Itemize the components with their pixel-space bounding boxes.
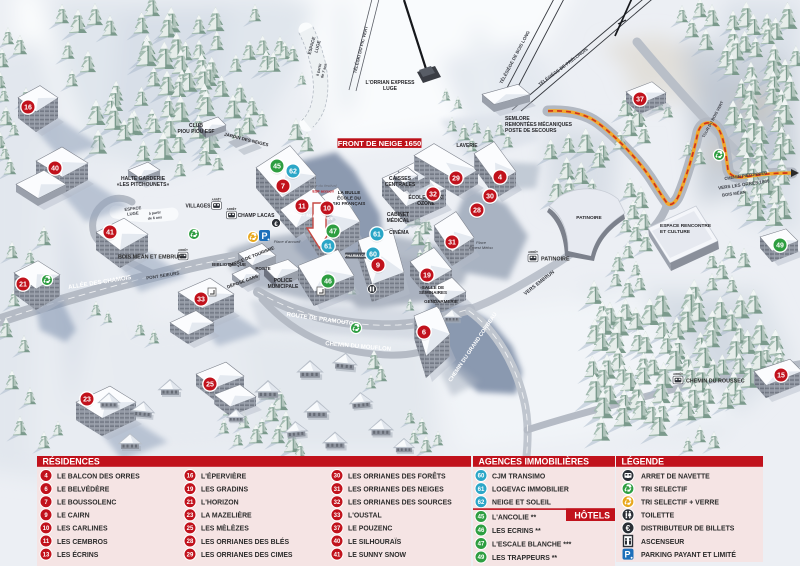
svg-text:47: 47 (478, 542, 485, 548)
svg-text:SÉMINAIRES: SÉMINAIRES (419, 288, 447, 295)
svg-text:L'HORIZON: L'HORIZON (201, 500, 239, 507)
svg-text:TRI SELECTIF + VERRE: TRI SELECTIF + VERRE (641, 500, 719, 507)
svg-text:LES TRAPPEURS **: LES TRAPPEURS ** (492, 555, 557, 562)
svg-text:MÉDICAL: MÉDICAL (387, 216, 410, 224)
svg-text:11: 11 (298, 204, 306, 211)
svg-text:LUGE: LUGE (383, 86, 398, 92)
svg-text:CHEMIN DU ROUSSEC: CHEMIN DU ROUSSEC (686, 379, 745, 385)
svg-text:PIOU PIOU ESF: PIOU PIOU ESF (178, 129, 215, 135)
svg-text:L'ANCOLIE **: L'ANCOLIE ** (492, 514, 536, 521)
svg-text:LAVERIE: LAVERIE (456, 143, 478, 149)
svg-text:PATINOIRE: PATINOIRE (576, 215, 602, 221)
svg-text:ESF accueil: ESF accueil (312, 190, 333, 194)
svg-text:30: 30 (486, 194, 494, 201)
svg-text:LES MÈLÈZES: LES MÈLÈZES (201, 524, 249, 533)
svg-text:45: 45 (478, 515, 485, 521)
svg-text:LE SILHOURAÏS: LE SILHOURAÏS (348, 538, 402, 546)
svg-text:7: 7 (281, 182, 285, 191)
svg-text:37: 37 (636, 97, 644, 104)
svg-text:POSTE DE SECOURS: POSTE DE SECOURS (505, 128, 557, 134)
svg-text:L'OUSTAL: L'OUSTAL (348, 513, 382, 520)
svg-text:LES ORRIANES DES BLÉS: LES ORRIANES DES BLÉS (201, 537, 289, 546)
svg-text:LE CAIRN: LE CAIRN (57, 513, 90, 520)
svg-text:LE BOUSSOLENC: LE BOUSSOLENC (57, 500, 116, 507)
svg-text:TOILETTE: TOILETTE (641, 513, 675, 520)
svg-text:LE BALCON DES ORRES: LE BALCON DES ORRES (57, 473, 140, 480)
svg-text:L'ESCALE BLANCHE ***: L'ESCALE BLANCHE *** (492, 541, 572, 548)
svg-text:60: 60 (478, 474, 485, 480)
svg-text:CINÉMA: CINÉMA (389, 228, 409, 236)
svg-text:P: P (624, 550, 630, 560)
svg-text:ARRET DE NAVETTE: ARRET DE NAVETTE (641, 473, 710, 480)
svg-text:LES ECRINS **: LES ECRINS ** (492, 528, 541, 535)
svg-text:21: 21 (19, 282, 27, 289)
svg-text:PARKING PAYANT ET LIMITÉ: PARKING PAYANT ET LIMITÉ (641, 550, 736, 559)
svg-text:29: 29 (452, 176, 460, 183)
svg-text:19: 19 (187, 487, 194, 493)
svg-text:LES CARLINES: LES CARLINES (57, 526, 108, 533)
svg-text:AGENCES IMMOBILIÈRES: AGENCES IMMOBILIÈRES (479, 456, 590, 466)
svg-text:61: 61 (478, 487, 485, 493)
svg-text:«LES PITCHOUNETS»: «LES PITCHOUNETS» (117, 182, 170, 188)
svg-text:LOGEVAC IMMOBILIER: LOGEVAC IMMOBILIER (492, 486, 569, 493)
svg-text:13: 13 (43, 552, 50, 558)
svg-text:40: 40 (334, 539, 341, 545)
svg-text:31: 31 (334, 487, 341, 493)
svg-text:Place du festival: Place du festival (307, 183, 336, 188)
svg-text:ÉCOLE DU: ÉCOLE DU (337, 194, 361, 201)
svg-text:25: 25 (206, 382, 214, 389)
svg-text:LES ÉCRINS: LES ÉCRINS (57, 550, 99, 559)
svg-text:45: 45 (273, 164, 281, 171)
svg-text:VILLAGES: VILLAGES (185, 204, 211, 210)
svg-text:Place d'accueil: Place d'accueil (274, 239, 301, 244)
svg-text:6: 6 (422, 328, 426, 337)
svg-text:REMONTÉES MÉCANIQUES: REMONTÉES MÉCANIQUES (505, 120, 573, 128)
svg-text:LES ORRIANES DES SOURCES: LES ORRIANES DES SOURCES (348, 500, 452, 507)
svg-text:28: 28 (473, 208, 481, 215)
svg-text:47: 47 (329, 229, 337, 236)
svg-text:PATINOIRE: PATINOIRE (541, 257, 570, 263)
svg-text:10: 10 (323, 206, 331, 213)
svg-text:33: 33 (334, 513, 341, 519)
svg-text:28: 28 (187, 539, 194, 545)
svg-text:23: 23 (83, 397, 91, 404)
svg-text:29: 29 (187, 552, 194, 558)
svg-text:40: 40 (51, 166, 59, 173)
svg-text:CJM TRANSIMO: CJM TRANSIMO (492, 473, 546, 480)
svg-text:L'ÉPERVIÈRE: L'ÉPERVIÈRE (201, 471, 247, 480)
svg-text:LE POUZENC: LE POUZENC (348, 526, 392, 533)
svg-text:LÉGENDE: LÉGENDE (622, 456, 665, 466)
svg-text:15: 15 (777, 373, 785, 380)
svg-text:DISTRIBUTEUR DE BILLETS: DISTRIBUTEUR DE BILLETS (641, 526, 735, 533)
svg-text:10: 10 (43, 526, 50, 532)
svg-text:61: 61 (373, 232, 381, 239)
svg-text:BIBLIOTHÈQUE: BIBLIOTHÈQUE (212, 260, 246, 267)
svg-text:16: 16 (24, 105, 32, 112)
svg-text:MUNICIPALE: MUNICIPALE (268, 284, 299, 290)
svg-text:BOIS MÉAN ET EMBRUN: BOIS MÉAN ET EMBRUN (118, 253, 182, 261)
svg-text:CENTRALES: CENTRALES (385, 182, 416, 188)
svg-text:46: 46 (478, 528, 485, 534)
svg-text:21: 21 (187, 500, 194, 506)
svg-text:19: 19 (423, 273, 431, 280)
svg-text:LES GRADINS: LES GRADINS (201, 486, 248, 493)
svg-text:LE BELVÉDÈRE: LE BELVÉDÈRE (57, 484, 110, 493)
svg-text:SKI FRANÇAIS: SKI FRANÇAIS (333, 201, 366, 206)
svg-text:ARRÊT: ARRÊT (673, 371, 683, 376)
svg-text:ET CULTURE: ET CULTURE (660, 229, 691, 235)
svg-text:ARRÊT: ARRÊT (178, 247, 188, 252)
svg-text:49: 49 (478, 555, 485, 561)
svg-text:P: P (261, 231, 267, 241)
svg-text:ARRÊT: ARRÊT (212, 197, 222, 202)
svg-text:GENDARMERIE: GENDARMERIE (424, 299, 458, 304)
svg-text:RÉSIDENCES: RÉSIDENCES (43, 456, 100, 466)
svg-text:33: 33 (197, 297, 205, 304)
svg-text:LES ORRIANES DES NEIGES: LES ORRIANES DES NEIGES (348, 486, 444, 493)
svg-text:ESPACE RENCONTRE: ESPACE RENCONTRE (660, 223, 712, 229)
svg-text:PHARMACIE: PHARMACIE (345, 254, 367, 258)
svg-text:16: 16 (187, 474, 194, 480)
svg-text:Ernest Mélou: Ernest Mélou (469, 245, 493, 250)
svg-text:LES ORRIANES DES CIMES: LES ORRIANES DES CIMES (201, 552, 293, 559)
svg-text:32: 32 (334, 500, 341, 506)
svg-text:61: 61 (324, 244, 332, 251)
svg-text:LE SUNNY SNOW: LE SUNNY SNOW (348, 552, 407, 559)
svg-text:NEIGE ET SOLEIL: NEIGE ET SOLEIL (492, 500, 551, 507)
svg-text:LA BULLE: LA BULLE (338, 190, 361, 195)
svg-text:ARRÊT: ARRÊT (528, 249, 538, 254)
svg-text:11: 11 (43, 539, 50, 545)
svg-text:32: 32 (429, 192, 437, 199)
svg-text:LA MAZELIÈRE: LA MAZELIÈRE (201, 511, 252, 520)
svg-text:41: 41 (334, 552, 341, 558)
svg-text:41: 41 (106, 230, 114, 237)
svg-text:46: 46 (324, 279, 332, 286)
svg-text:ARRÊT: ARRÊT (227, 206, 237, 211)
svg-text:62: 62 (289, 169, 297, 176)
svg-text:25: 25 (187, 526, 194, 532)
svg-text:37: 37 (334, 526, 341, 532)
svg-text:LES CEMBROS: LES CEMBROS (57, 539, 108, 546)
svg-text:LES ORRIANES DES FORÊTS: LES ORRIANES DES FORÊTS (348, 471, 446, 480)
svg-text:30: 30 (334, 474, 341, 480)
svg-text:CHAMP LACAS: CHAMP LACAS (238, 213, 276, 219)
svg-text:9: 9 (376, 261, 380, 270)
svg-text:23: 23 (187, 513, 194, 519)
svg-text:POSTE: POSTE (255, 266, 270, 271)
svg-text:31: 31 (448, 240, 456, 247)
svg-text:49: 49 (776, 243, 784, 250)
svg-text:62: 62 (478, 500, 485, 506)
svg-text:HÔTELS: HÔTELS (574, 509, 610, 520)
svg-text:€: € (626, 523, 631, 533)
svg-text:ASCENSEUR: ASCENSEUR (641, 539, 684, 546)
svg-text:FRONT DE NEIGE 1650: FRONT DE NEIGE 1650 (338, 139, 422, 148)
svg-text:TRI SELECTIF: TRI SELECTIF (641, 486, 687, 493)
